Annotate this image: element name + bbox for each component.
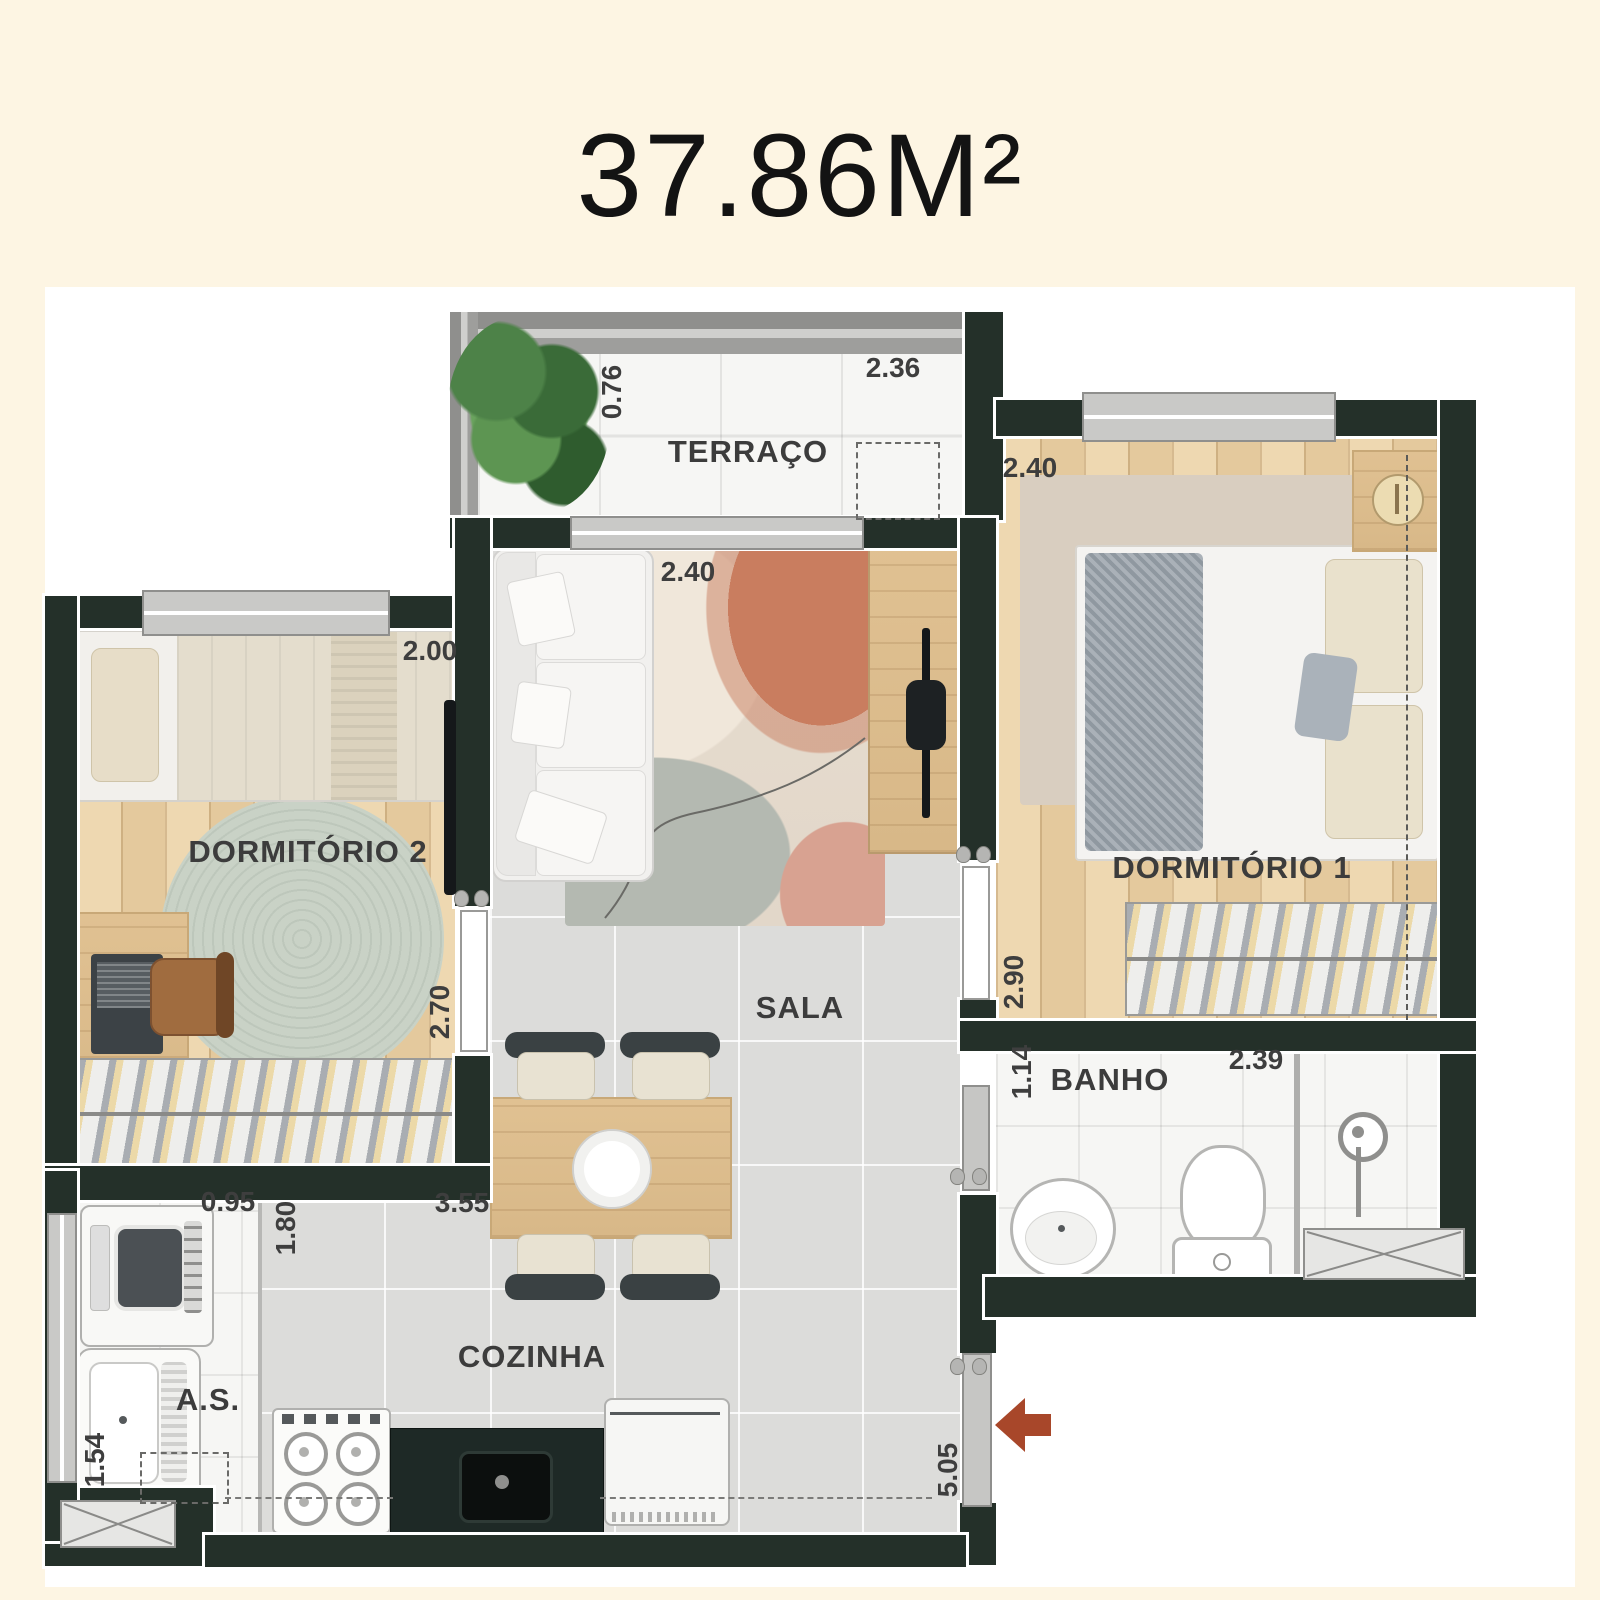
laundry-dashed-line [225,1497,393,1499]
bathroom-width-measure: 2.39 [1229,1044,1284,1076]
laundry-dashed-area [140,1452,229,1504]
bed-blanket [1085,553,1203,851]
right-outer-wall [1440,400,1476,1317]
door-handle-icon [950,1168,965,1185]
bedroom2-depth-measure: 2.70 [424,985,456,1040]
bedroom2-bed [77,630,459,802]
dining-chair [620,1032,720,1098]
terrace-label: TERRAÇO [668,434,828,470]
terrace-width-measure: 2.36 [866,352,921,384]
laundry-kitchen-divider [258,1200,262,1538]
page-title: 37.86M² [0,108,1600,244]
bedroom1-dashed-line [1406,455,1408,1020]
bed-accent-pillow [1293,652,1358,743]
bedroom1-bed [1075,545,1439,861]
floorplan-canvas: 37.86M² [0,0,1600,1600]
terrace-sliding-door [570,516,864,550]
dining-chair [505,1032,605,1098]
door-handle-icon [972,1168,987,1185]
laundry-label: A.S. [176,1382,240,1418]
living-width-measure: 2.40 [661,556,716,588]
door-handle-icon [950,1358,965,1375]
laundry-width-measure: 0.95 [201,1186,256,1218]
toilet-icon [1172,1145,1268,1287]
bedroom2-window [142,590,390,636]
terrace-dashed-area [856,442,940,520]
shower-head-icon [1338,1112,1388,1162]
bathroom-depth-measure: 1.14 [1006,1045,1038,1100]
living-label: SALA [756,990,844,1026]
bedroom2-bottom-wall [45,1166,490,1200]
kitchen-dashed-line [600,1497,932,1499]
bed-pillow [91,648,159,782]
plant-icon [448,316,610,514]
bed-knit-throw [331,632,397,800]
entry-door [962,1353,992,1507]
nightstand [1352,450,1441,552]
tv-base-icon [906,680,946,750]
plate-icon [572,1129,652,1209]
bathroom-sink-icon [1010,1178,1116,1280]
x-mark-icon [62,1502,174,1546]
left-outer-wall [45,596,77,1171]
apartment-length-measure: 5.05 [932,1443,964,1498]
shower-divider [1294,1051,1300,1277]
kitchen-counter [390,1428,604,1540]
bedroom2-right-wall-upper [455,518,490,906]
door-handle-icon [454,890,469,907]
bedroom2-door [460,910,488,1052]
bedroom2-width-measure: 2.00 [403,635,458,667]
washer-icon [80,1205,214,1347]
kitchen-width-measure: 3.55 [435,1187,490,1219]
bedroom1-bookshelf [1125,902,1449,1016]
bedroom2-label: DORMITÓRIO 2 [188,834,427,870]
sofa-pillow [510,681,572,750]
door-handle-icon [972,1358,987,1375]
bedroom1-depth-measure: 2.90 [998,955,1030,1010]
lamp-icon [1372,474,1424,526]
desk-chair [150,952,242,1038]
bathroom-shaft-box [1303,1228,1465,1280]
bedroom2-tv-icon [444,700,456,895]
stove-icon [272,1408,391,1534]
bedroom1-door [962,866,990,1000]
entry-arrow-icon [995,1398,1053,1452]
dining-table [490,1097,732,1239]
laundry-window [47,1213,77,1483]
bottom-outer-wall [205,1535,966,1567]
laundry-depth-measure: 1.54 [79,1433,111,1488]
dining-chair [505,1234,605,1300]
bedroom2-bookshelf [77,1058,459,1170]
laundry-shaft-box [60,1500,176,1548]
bedroom1-label: DORMITÓRIO 1 [1112,850,1351,886]
dining-chair [620,1234,720,1300]
bathroom-label: BANHO [1051,1062,1170,1098]
living-bedroom1-wall [960,518,996,860]
tv-stand [868,538,968,854]
bedroom1-width-measure: 2.40 [1003,452,1058,484]
bedroom1-window [1082,392,1336,442]
door-handle-icon [956,846,971,863]
x-mark-icon [1305,1230,1463,1278]
door-handle-icon [976,846,991,863]
kitchen-depth-measure: 1.80 [270,1201,302,1256]
terrace-depth-measure: 0.76 [596,365,628,420]
fridge-icon [604,1398,730,1526]
sofa [492,548,654,882]
kitchen-label: COZINHA [458,1339,606,1375]
faucet-icon [495,1475,509,1489]
bathroom-bottom-wall [985,1277,1476,1317]
bathroom-left-wall [960,1195,996,1353]
door-handle-icon [474,890,489,907]
